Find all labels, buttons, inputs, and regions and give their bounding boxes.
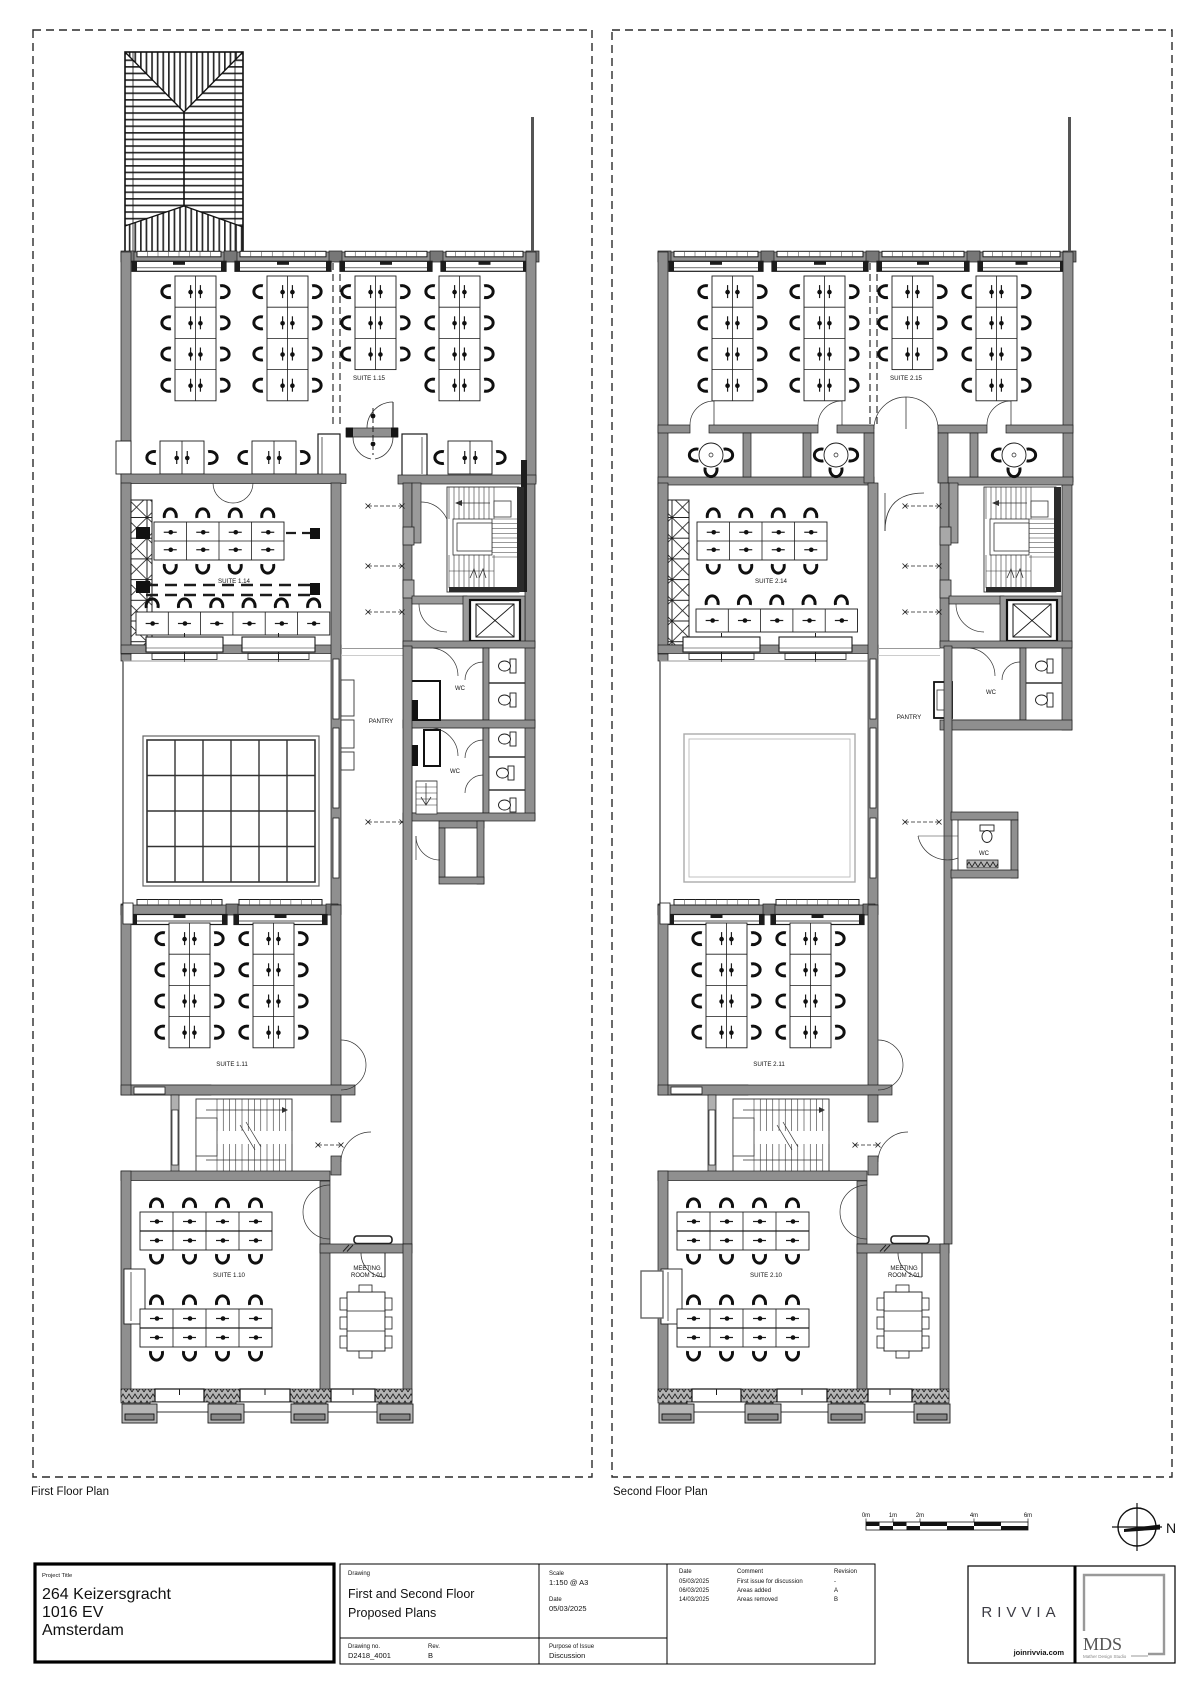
svg-text:Drawing: Drawing — [348, 1571, 370, 1577]
svg-text:N: N — [1166, 1520, 1176, 1536]
svg-text:SUITE 1.10: SUITE 1.10 — [213, 1272, 246, 1279]
svg-text:Discussion: Discussion — [549, 1651, 585, 1660]
svg-text:0m: 0m — [862, 1513, 870, 1519]
svg-text:Date: Date — [679, 1569, 692, 1575]
svg-text:6m: 6m — [1024, 1513, 1032, 1519]
svg-text:Mather Design Studio: Mather Design Studio — [1083, 1654, 1127, 1659]
svg-text:-: - — [834, 1579, 836, 1585]
svg-text:05/03/2025: 05/03/2025 — [549, 1604, 587, 1613]
svg-text:Second Floor Plan: Second Floor Plan — [613, 1486, 708, 1498]
svg-text:D2418_4001: D2418_4001 — [348, 1651, 391, 1660]
svg-text:1:150 @ A3: 1:150 @ A3 — [549, 1578, 588, 1587]
svg-text:264 Keizersgracht: 264 Keizersgracht — [42, 1586, 172, 1603]
svg-text:SUITE 1.14: SUITE 1.14 — [218, 578, 251, 585]
svg-text:Comment: Comment — [737, 1569, 763, 1575]
svg-text:Purpose of Issue: Purpose of Issue — [549, 1644, 595, 1650]
svg-text:SUITE 2.15: SUITE 2.15 — [890, 375, 923, 382]
svg-text:Scale: Scale — [549, 1571, 565, 1577]
svg-text:Areas removed: Areas removed — [737, 1597, 778, 1603]
svg-text:joinrivvia.com: joinrivvia.com — [1013, 1648, 1065, 1657]
svg-text:SUITE 2.14: SUITE 2.14 — [755, 578, 788, 585]
svg-text:Rev.: Rev. — [428, 1644, 440, 1650]
svg-text:05/03/2025: 05/03/2025 — [679, 1579, 710, 1585]
svg-text:Amsterdam: Amsterdam — [42, 1622, 124, 1639]
svg-text:ROOM 2.01: ROOM 2.01 — [888, 1273, 921, 1279]
svg-text:First and Second Floor: First and Second Floor — [348, 1587, 474, 1601]
svg-text:Project Title: Project Title — [42, 1573, 72, 1579]
svg-text:MEETING: MEETING — [353, 1266, 381, 1272]
svg-text:Revision: Revision — [834, 1569, 857, 1575]
svg-text:A: A — [834, 1588, 838, 1594]
svg-text:4m: 4m — [970, 1513, 978, 1519]
svg-text:Proposed Plans: Proposed Plans — [348, 1606, 436, 1620]
svg-text:Drawing no.: Drawing no. — [348, 1644, 380, 1650]
svg-text:B: B — [834, 1597, 838, 1603]
svg-text:B: B — [428, 1651, 433, 1660]
svg-text:PANTRY: PANTRY — [897, 714, 922, 721]
svg-text:Date: Date — [549, 1597, 562, 1603]
svg-text:RIVVIA: RIVVIA — [981, 1604, 1060, 1621]
svg-text:First issue for discussion: First issue for discussion — [737, 1579, 803, 1585]
svg-text:SUITE 2.11: SUITE 2.11 — [753, 1061, 785, 1068]
svg-text:PANTRY: PANTRY — [369, 718, 394, 725]
svg-text:WC: WC — [986, 690, 997, 696]
svg-text:ROOM 1.01: ROOM 1.01 — [351, 1273, 384, 1279]
svg-text:MDS: MDS — [1083, 1634, 1122, 1654]
svg-text:SUITE 1.15: SUITE 1.15 — [353, 375, 386, 382]
svg-text:06/03/2025: 06/03/2025 — [679, 1588, 710, 1594]
svg-text:Areas added: Areas added — [737, 1588, 771, 1594]
svg-text:WC: WC — [450, 769, 461, 775]
svg-text:1016 EV: 1016 EV — [42, 1604, 104, 1621]
svg-text:First Floor Plan: First Floor Plan — [31, 1486, 109, 1498]
svg-text:14/03/2025: 14/03/2025 — [679, 1597, 710, 1603]
svg-text:WC: WC — [455, 686, 466, 692]
svg-text:SUITE 1.11: SUITE 1.11 — [216, 1061, 248, 1068]
svg-text:WC: WC — [979, 851, 990, 857]
svg-text:2m: 2m — [916, 1513, 924, 1519]
svg-text:SUITE 2.10: SUITE 2.10 — [750, 1272, 783, 1279]
svg-text:1m: 1m — [889, 1513, 897, 1519]
svg-text:MEETING: MEETING — [890, 1266, 918, 1272]
